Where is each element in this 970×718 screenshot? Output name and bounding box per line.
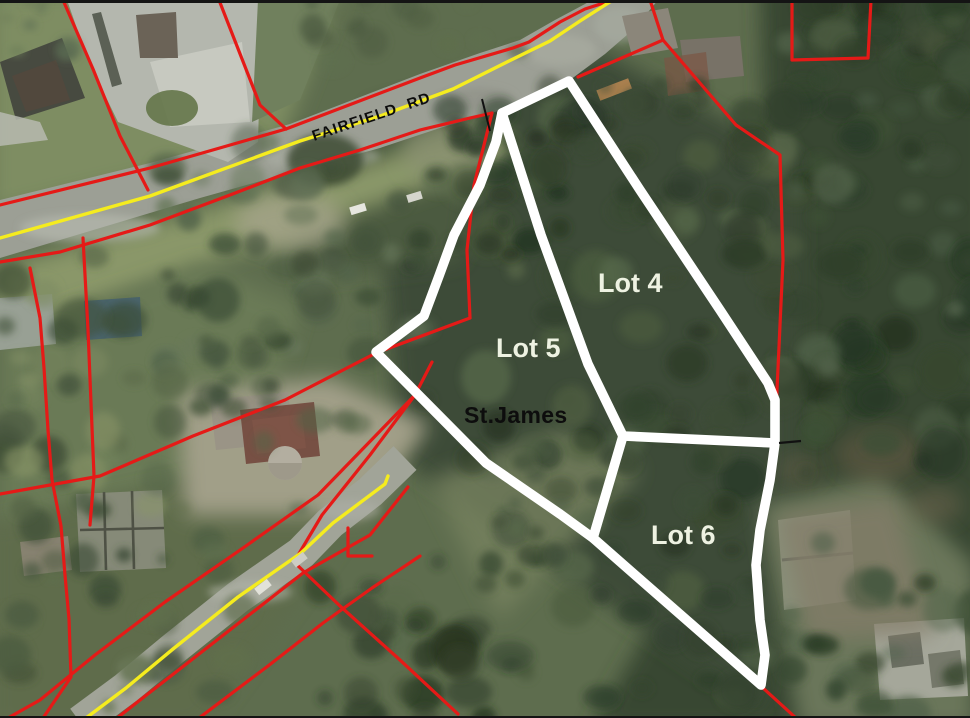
- svg-text:Lot 4: Lot 4: [598, 268, 663, 298]
- svg-text:St.James: St.James: [464, 402, 567, 428]
- svg-text:Lot 5: Lot 5: [496, 333, 561, 363]
- svg-text:Lot 6: Lot 6: [651, 520, 716, 550]
